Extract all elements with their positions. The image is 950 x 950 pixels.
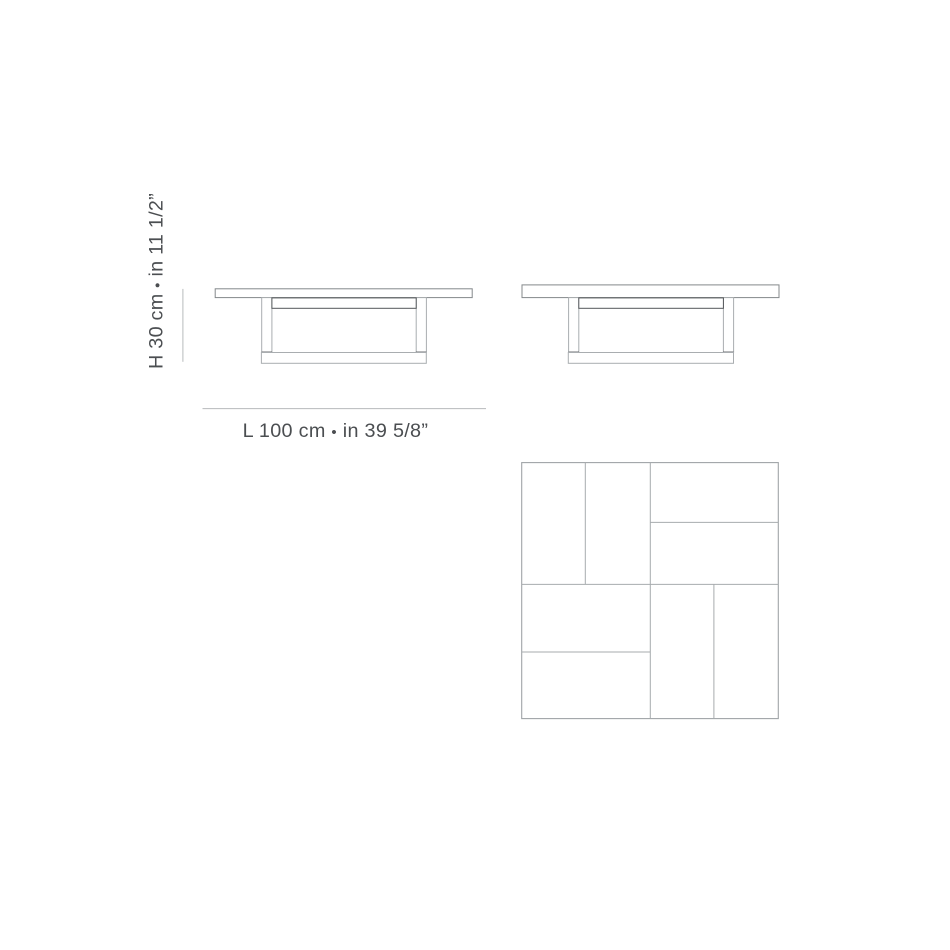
svg-text:H 30 cm • in 11 1/2”: H 30 cm • in 11 1/2” — [146, 193, 168, 369]
svg-text:L 100 cm • in 39 5/8”: L 100 cm • in 39 5/8” — [243, 420, 429, 442]
